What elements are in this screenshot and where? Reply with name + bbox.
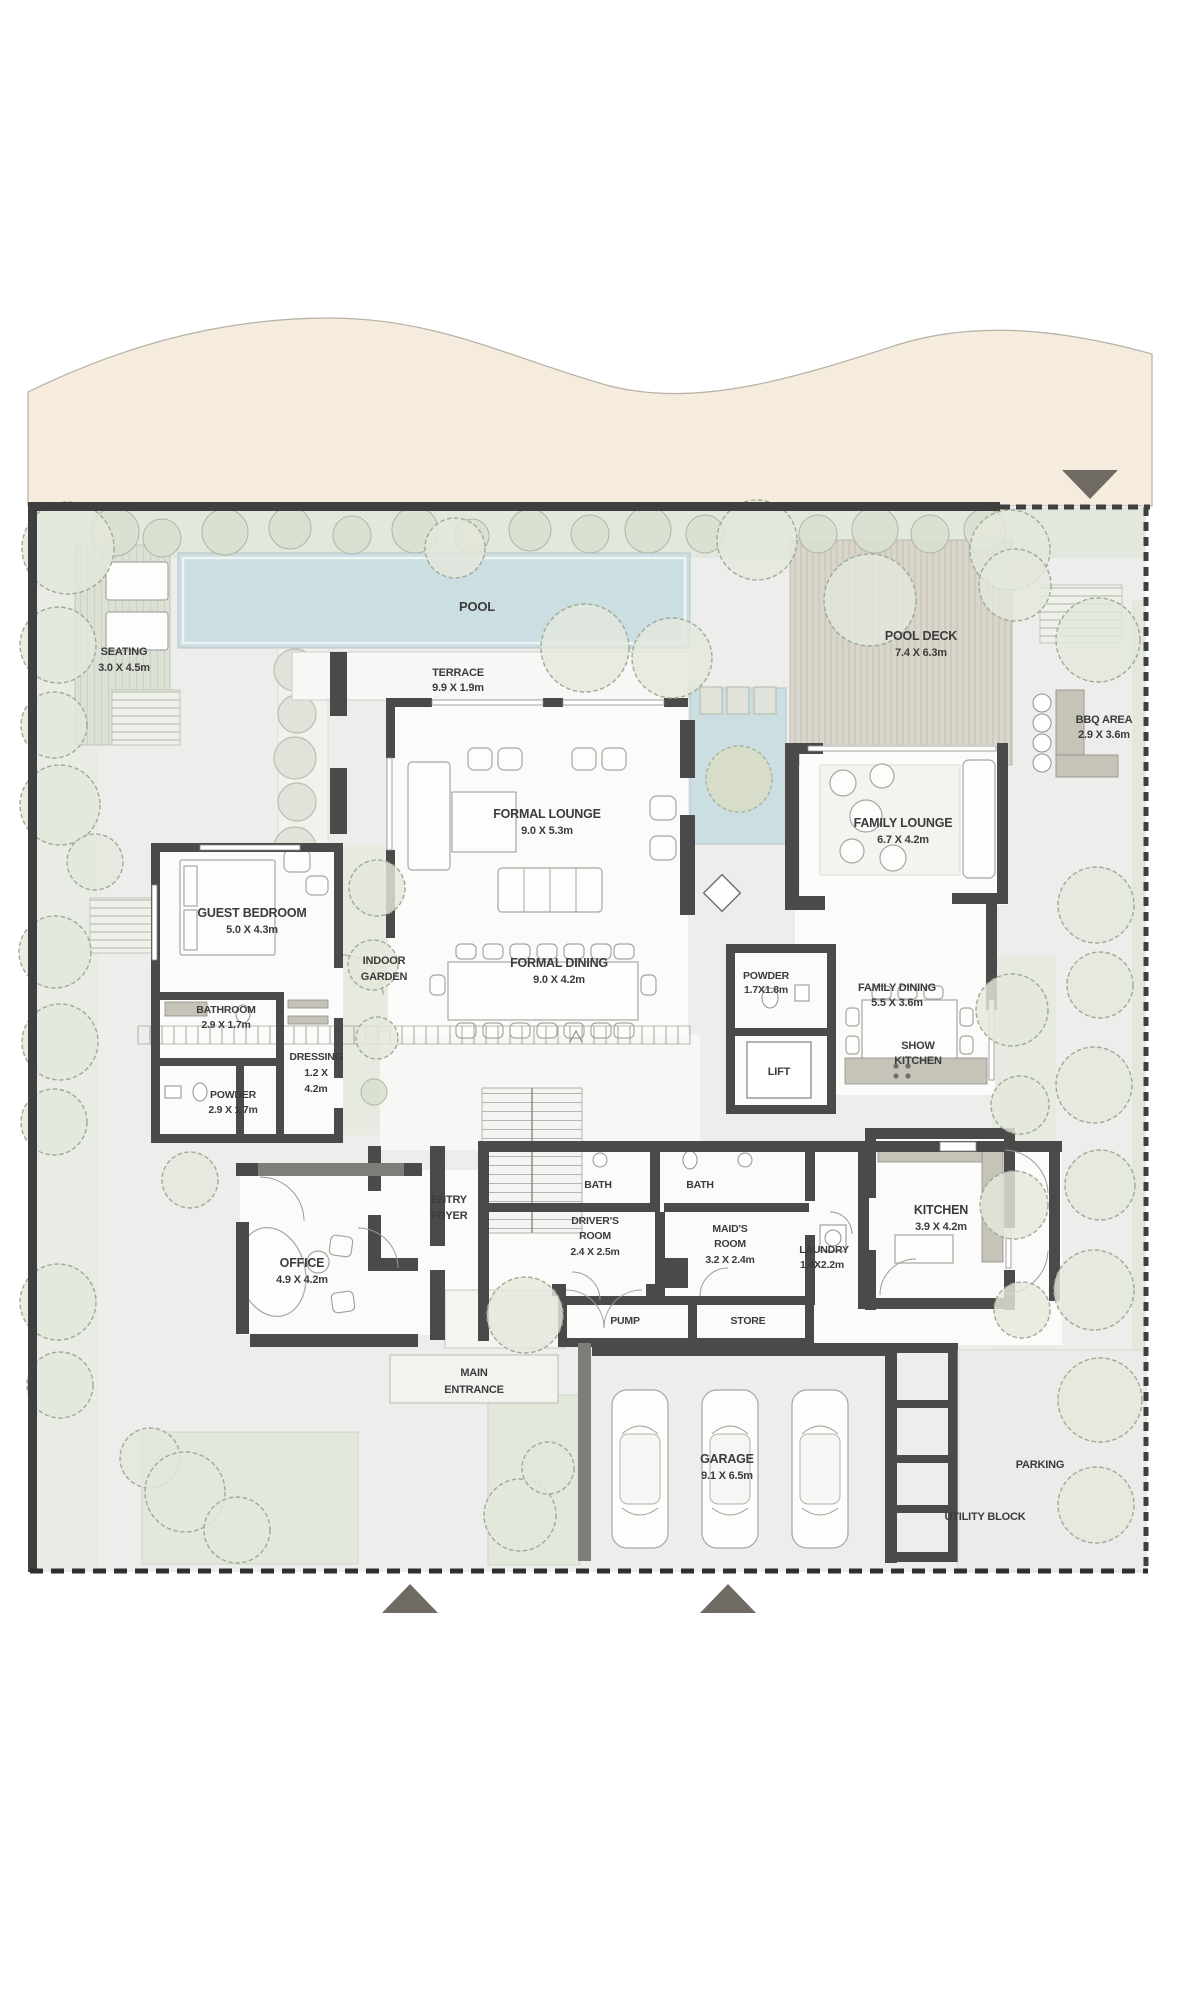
tree-icon (162, 1152, 218, 1208)
car-icon (792, 1390, 848, 1548)
svg-text:1.2 X: 1.2 X (304, 1067, 328, 1079)
label-powder: POWDER (743, 970, 790, 982)
floor-plan-drawing: SEATING 3.0 X 4.5m POOL TERRACE 9.9 X 1.… (0, 0, 1180, 2002)
tree-icon (67, 834, 123, 890)
floor-plan-page: SEATING 3.0 X 4.5m POOL TERRACE 9.9 X 1.… (0, 0, 1180, 2002)
svg-text:3.0 X 4.5m: 3.0 X 4.5m (98, 662, 150, 674)
tree-icon (1056, 598, 1140, 682)
boundary-wall-left (28, 502, 37, 1572)
label-bath-2: BATH (686, 1179, 714, 1191)
svg-text:7.4 X 6.3m: 7.4 X 6.3m (895, 647, 947, 659)
bush-icon (852, 507, 898, 553)
tree-icon (979, 549, 1051, 621)
svg-text:9.9 X 1.9m: 9.9 X 1.9m (432, 682, 484, 694)
label-bath-1: BATH (584, 1179, 612, 1191)
label-drivers-room: DRIVER'S (571, 1215, 619, 1227)
label-bbq-area: BBQ AREA (1076, 714, 1133, 726)
svg-text:KITCHEN: KITCHEN (894, 1055, 942, 1067)
label-bathroom: BATHROOM (196, 1004, 256, 1016)
tree-icon (541, 604, 629, 692)
bush-icon (911, 515, 949, 553)
stepping-stone (754, 687, 776, 714)
svg-text:ENTRANCE: ENTRANCE (444, 1384, 504, 1396)
bush-icon (361, 1079, 387, 1105)
label-office: OFFICE (280, 1256, 325, 1270)
tree-icon (204, 1497, 270, 1563)
svg-text:2.4 X 2.5m: 2.4 X 2.5m (570, 1246, 619, 1258)
label-indoor-garden: INDOOR (363, 955, 406, 967)
bush-icon (269, 507, 311, 549)
svg-text:3.2 X 2.4m: 3.2 X 2.4m (705, 1254, 754, 1266)
label-dressing: DRESSING (289, 1051, 342, 1063)
tree-icon (1056, 1047, 1132, 1123)
tree-icon (1067, 952, 1133, 1018)
tree-icon (632, 618, 712, 698)
tree-icon (1058, 867, 1134, 943)
tree-icon (349, 860, 405, 916)
svg-text:ROOM: ROOM (714, 1238, 746, 1250)
tree-icon (1058, 1358, 1142, 1442)
svg-text:6.7 X 4.2m: 6.7 X 4.2m (877, 834, 929, 846)
label-parking: PARKING (1016, 1459, 1065, 1471)
terrace-floor (292, 652, 688, 700)
stepping-stone (700, 687, 722, 714)
car-icon (702, 1390, 758, 1548)
bush-icon (625, 507, 671, 553)
svg-text:9.0 X 5.3m: 9.0 X 5.3m (521, 825, 573, 837)
label-main-entrance: MAIN (460, 1367, 488, 1379)
sand-beach-area (28, 318, 1152, 506)
tree-icon (980, 1171, 1048, 1239)
label-lift: LIFT (768, 1066, 791, 1078)
tree-icon (976, 974, 1048, 1046)
svg-text:3.9 X 4.2m: 3.9 X 4.2m (915, 1221, 967, 1233)
svg-text:4.9 X 4.2m: 4.9 X 4.2m (276, 1274, 328, 1286)
label-terrace: TERRACE (432, 667, 484, 679)
svg-text:1.4X2.2m: 1.4X2.2m (800, 1259, 844, 1271)
svg-text:ROOM: ROOM (579, 1230, 611, 1242)
label-entry-foyer: ENTRY (431, 1194, 468, 1206)
tree-icon (425, 518, 485, 578)
label-family-dining: FAMILY DINING (858, 982, 936, 994)
bush-icon (333, 516, 371, 554)
label-show-kitchen: SHOW (901, 1040, 935, 1052)
bush-icon (509, 509, 551, 551)
tree-icon (991, 1076, 1049, 1134)
tree-icon (1065, 1150, 1135, 1220)
tree-icon (717, 500, 797, 580)
svg-text:5.5 X 3.6m: 5.5 X 3.6m (871, 997, 923, 1009)
tree-icon (1054, 1250, 1134, 1330)
label-pool: POOL (459, 599, 495, 614)
label-pump: PUMP (610, 1315, 640, 1327)
label-guest-bedroom: GUEST BEDROOM (197, 906, 306, 920)
tree-icon (994, 1282, 1050, 1338)
svg-text:2.9 X 1.7m: 2.9 X 1.7m (208, 1104, 257, 1116)
svg-text:5.0 X 4.3m: 5.0 X 4.3m (226, 924, 278, 936)
svg-text:4.2m: 4.2m (304, 1083, 327, 1095)
label-garage: GARAGE (700, 1452, 754, 1466)
svg-text:GARDEN: GARDEN (361, 971, 408, 983)
label-store: STORE (731, 1315, 766, 1327)
label-formal-lounge: FORMAL LOUNGE (493, 807, 601, 821)
svg-text:2.9 X 3.6m: 2.9 X 3.6m (1078, 729, 1130, 741)
entrance-marker-icon (382, 1584, 438, 1613)
entrance-marker-icon (700, 1584, 756, 1613)
label-utility-block: UTILITY BLOCK (945, 1511, 1026, 1523)
fountain-planter (706, 746, 772, 812)
label-laundry: LAUNDRY (799, 1244, 849, 1256)
label-maids-room: MAID'S (712, 1223, 747, 1235)
bush-icon (799, 515, 837, 553)
car-icon (612, 1390, 668, 1548)
bush-icon (571, 515, 609, 553)
bush-icon (143, 519, 181, 557)
stepping-stone (727, 687, 749, 714)
label-seating: SEATING (101, 646, 148, 658)
svg-text:9.1 X 6.5m: 9.1 X 6.5m (701, 1470, 753, 1482)
label-pool-deck: POOL DECK (885, 629, 957, 643)
svg-text:1.7X1.8m: 1.7X1.8m (744, 984, 788, 996)
steps-seating (112, 690, 180, 745)
tree-icon (522, 1442, 574, 1494)
label-formal-dining: FORMAL DINING (510, 956, 608, 970)
svg-text:9.0 X 4.2m: 9.0 X 4.2m (533, 974, 585, 986)
label-powder-guest: POWDER (210, 1089, 257, 1101)
label-family-lounge: FAMILY LOUNGE (854, 816, 953, 830)
svg-text:2.9 X 1.7m: 2.9 X 1.7m (201, 1019, 250, 1031)
tree-icon (356, 1017, 398, 1059)
bush-icon (202, 509, 248, 555)
tree-icon (487, 1277, 563, 1353)
boundary-wall-top (30, 502, 1000, 511)
svg-text:FOYER: FOYER (431, 1210, 468, 1222)
label-kitchen: KITCHEN (914, 1203, 968, 1217)
tree-icon (1058, 1467, 1134, 1543)
